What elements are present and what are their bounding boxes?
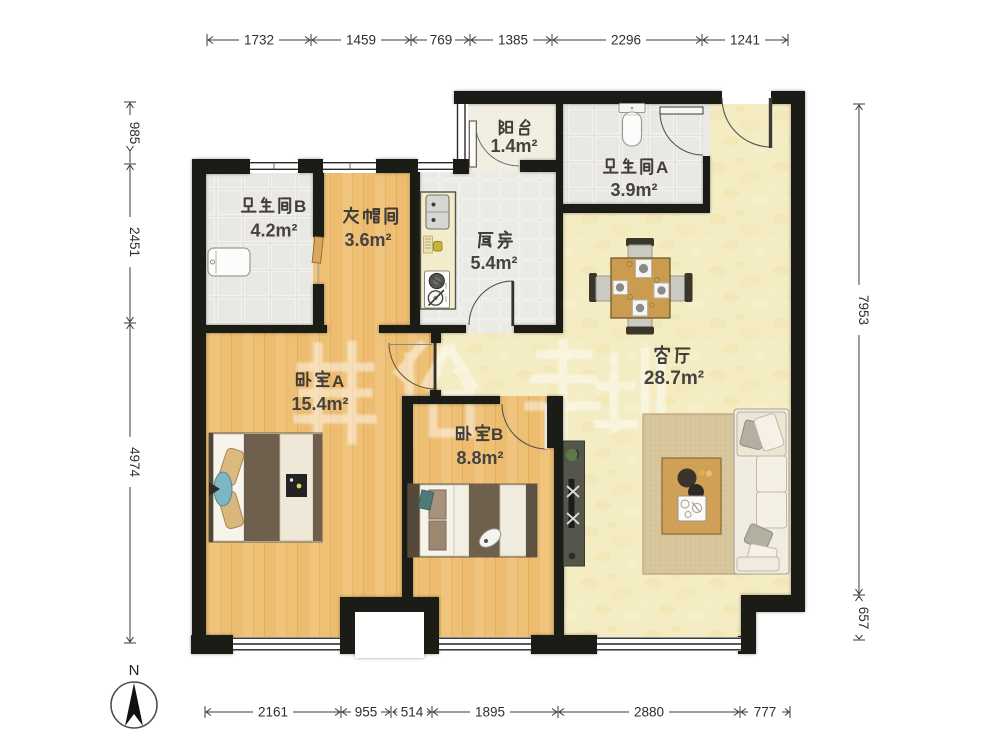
svg-text:777: 777: [754, 705, 777, 720]
svg-text:2451: 2451: [127, 227, 142, 257]
svg-text:1241: 1241: [730, 33, 760, 48]
svg-text:657: 657: [856, 607, 871, 630]
svg-text:1732: 1732: [244, 33, 274, 48]
svg-text:4.2m²: 4.2m²: [250, 221, 297, 241]
svg-text:1459: 1459: [346, 33, 376, 48]
svg-text:8.8m²: 8.8m²: [456, 448, 503, 468]
svg-text:769: 769: [430, 33, 453, 48]
svg-text:7953: 7953: [856, 295, 871, 325]
svg-text:514: 514: [401, 705, 424, 720]
svg-text:A: A: [332, 372, 344, 391]
svg-text:4974: 4974: [127, 447, 142, 478]
svg-text:15.4m²: 15.4m²: [291, 394, 348, 414]
svg-text:N: N: [129, 662, 140, 679]
svg-text:B: B: [294, 197, 306, 216]
svg-text:28.7m²: 28.7m²: [644, 368, 704, 389]
svg-text:1.4m²: 1.4m²: [490, 136, 537, 156]
svg-text:A: A: [656, 158, 668, 177]
svg-text:955: 955: [355, 705, 378, 720]
svg-text:3.6m²: 3.6m²: [344, 230, 391, 250]
svg-text:5.4m²: 5.4m²: [470, 253, 517, 273]
svg-text:2880: 2880: [634, 705, 664, 720]
svg-text:3.9m²: 3.9m²: [610, 180, 657, 200]
svg-text:2296: 2296: [611, 33, 641, 48]
svg-text:985: 985: [127, 122, 142, 145]
svg-text:1385: 1385: [498, 33, 528, 48]
svg-text:2161: 2161: [258, 705, 288, 720]
svg-text:1895: 1895: [475, 705, 505, 720]
svg-text:B: B: [491, 425, 503, 444]
